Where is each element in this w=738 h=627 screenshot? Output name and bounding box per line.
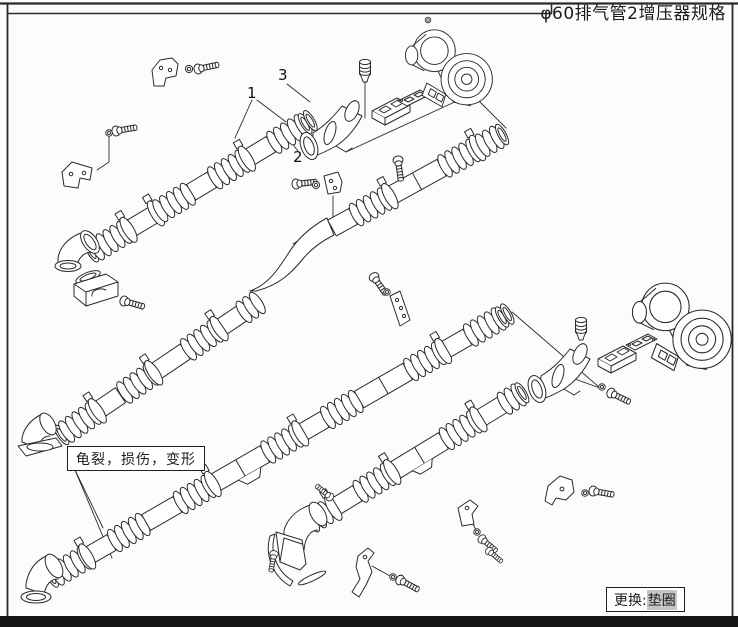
washer — [384, 289, 390, 295]
clamp-bracket — [152, 58, 178, 86]
callout-2: 2 — [293, 148, 303, 166]
exploded-diagram — [0, 0, 738, 627]
callout-1: 1 — [247, 84, 257, 102]
damage-note-box: 龟裂，损伤，变形 — [67, 446, 205, 471]
bolt — [588, 485, 615, 499]
washer — [474, 529, 480, 535]
flex-pipe-upper-left — [78, 101, 321, 266]
bottom-bar — [0, 616, 738, 627]
washer — [390, 574, 396, 580]
flex-pipe-lower — [297, 373, 534, 537]
replace-note-box: 更换:垫圈 — [606, 587, 685, 612]
plug-fitting-upper — [360, 59, 371, 82]
replace-label: 更换: — [614, 590, 647, 610]
plug-fitting-lower — [576, 317, 587, 340]
flange-block-lower — [598, 346, 636, 373]
elbow-lower-hardware — [599, 384, 633, 407]
bolt — [111, 122, 138, 136]
washer — [312, 181, 319, 188]
gasket-edge — [297, 569, 327, 587]
flex-pipe-s-bend-lower — [47, 283, 269, 449]
washer — [106, 130, 112, 136]
gasket-plate-lower — [626, 334, 657, 350]
hook-bracket — [352, 548, 374, 597]
washer — [582, 490, 588, 496]
figure-page: φ60排气管2增压器规格 1 2 3 龟裂，损伤，变形 更换:垫圈 — [0, 0, 738, 627]
figure-title: φ60排气管2增压器规格 — [540, 3, 726, 25]
bolt — [394, 574, 421, 595]
end-elbow-s-bend — [18, 410, 62, 456]
bolt — [193, 60, 220, 75]
clamp-bracket — [545, 476, 574, 505]
clamp-plate — [324, 172, 342, 194]
right-clamp-hardware — [545, 476, 615, 505]
callout-3: 3 — [278, 66, 288, 84]
right-mid-hardware — [458, 500, 505, 565]
turbocharger-lower — [632, 283, 731, 370]
bolt — [119, 295, 146, 312]
clamp-bracket — [458, 500, 478, 526]
upper-left-hardware — [62, 58, 220, 188]
replace-highlight: 垫圈 — [647, 590, 677, 610]
s-bend-tube — [250, 218, 334, 291]
bottom-hook-hardware — [352, 548, 421, 597]
support-bracket — [62, 162, 92, 188]
bolt — [605, 387, 632, 407]
washer — [599, 384, 605, 390]
washer — [185, 65, 192, 72]
washer — [425, 17, 431, 23]
